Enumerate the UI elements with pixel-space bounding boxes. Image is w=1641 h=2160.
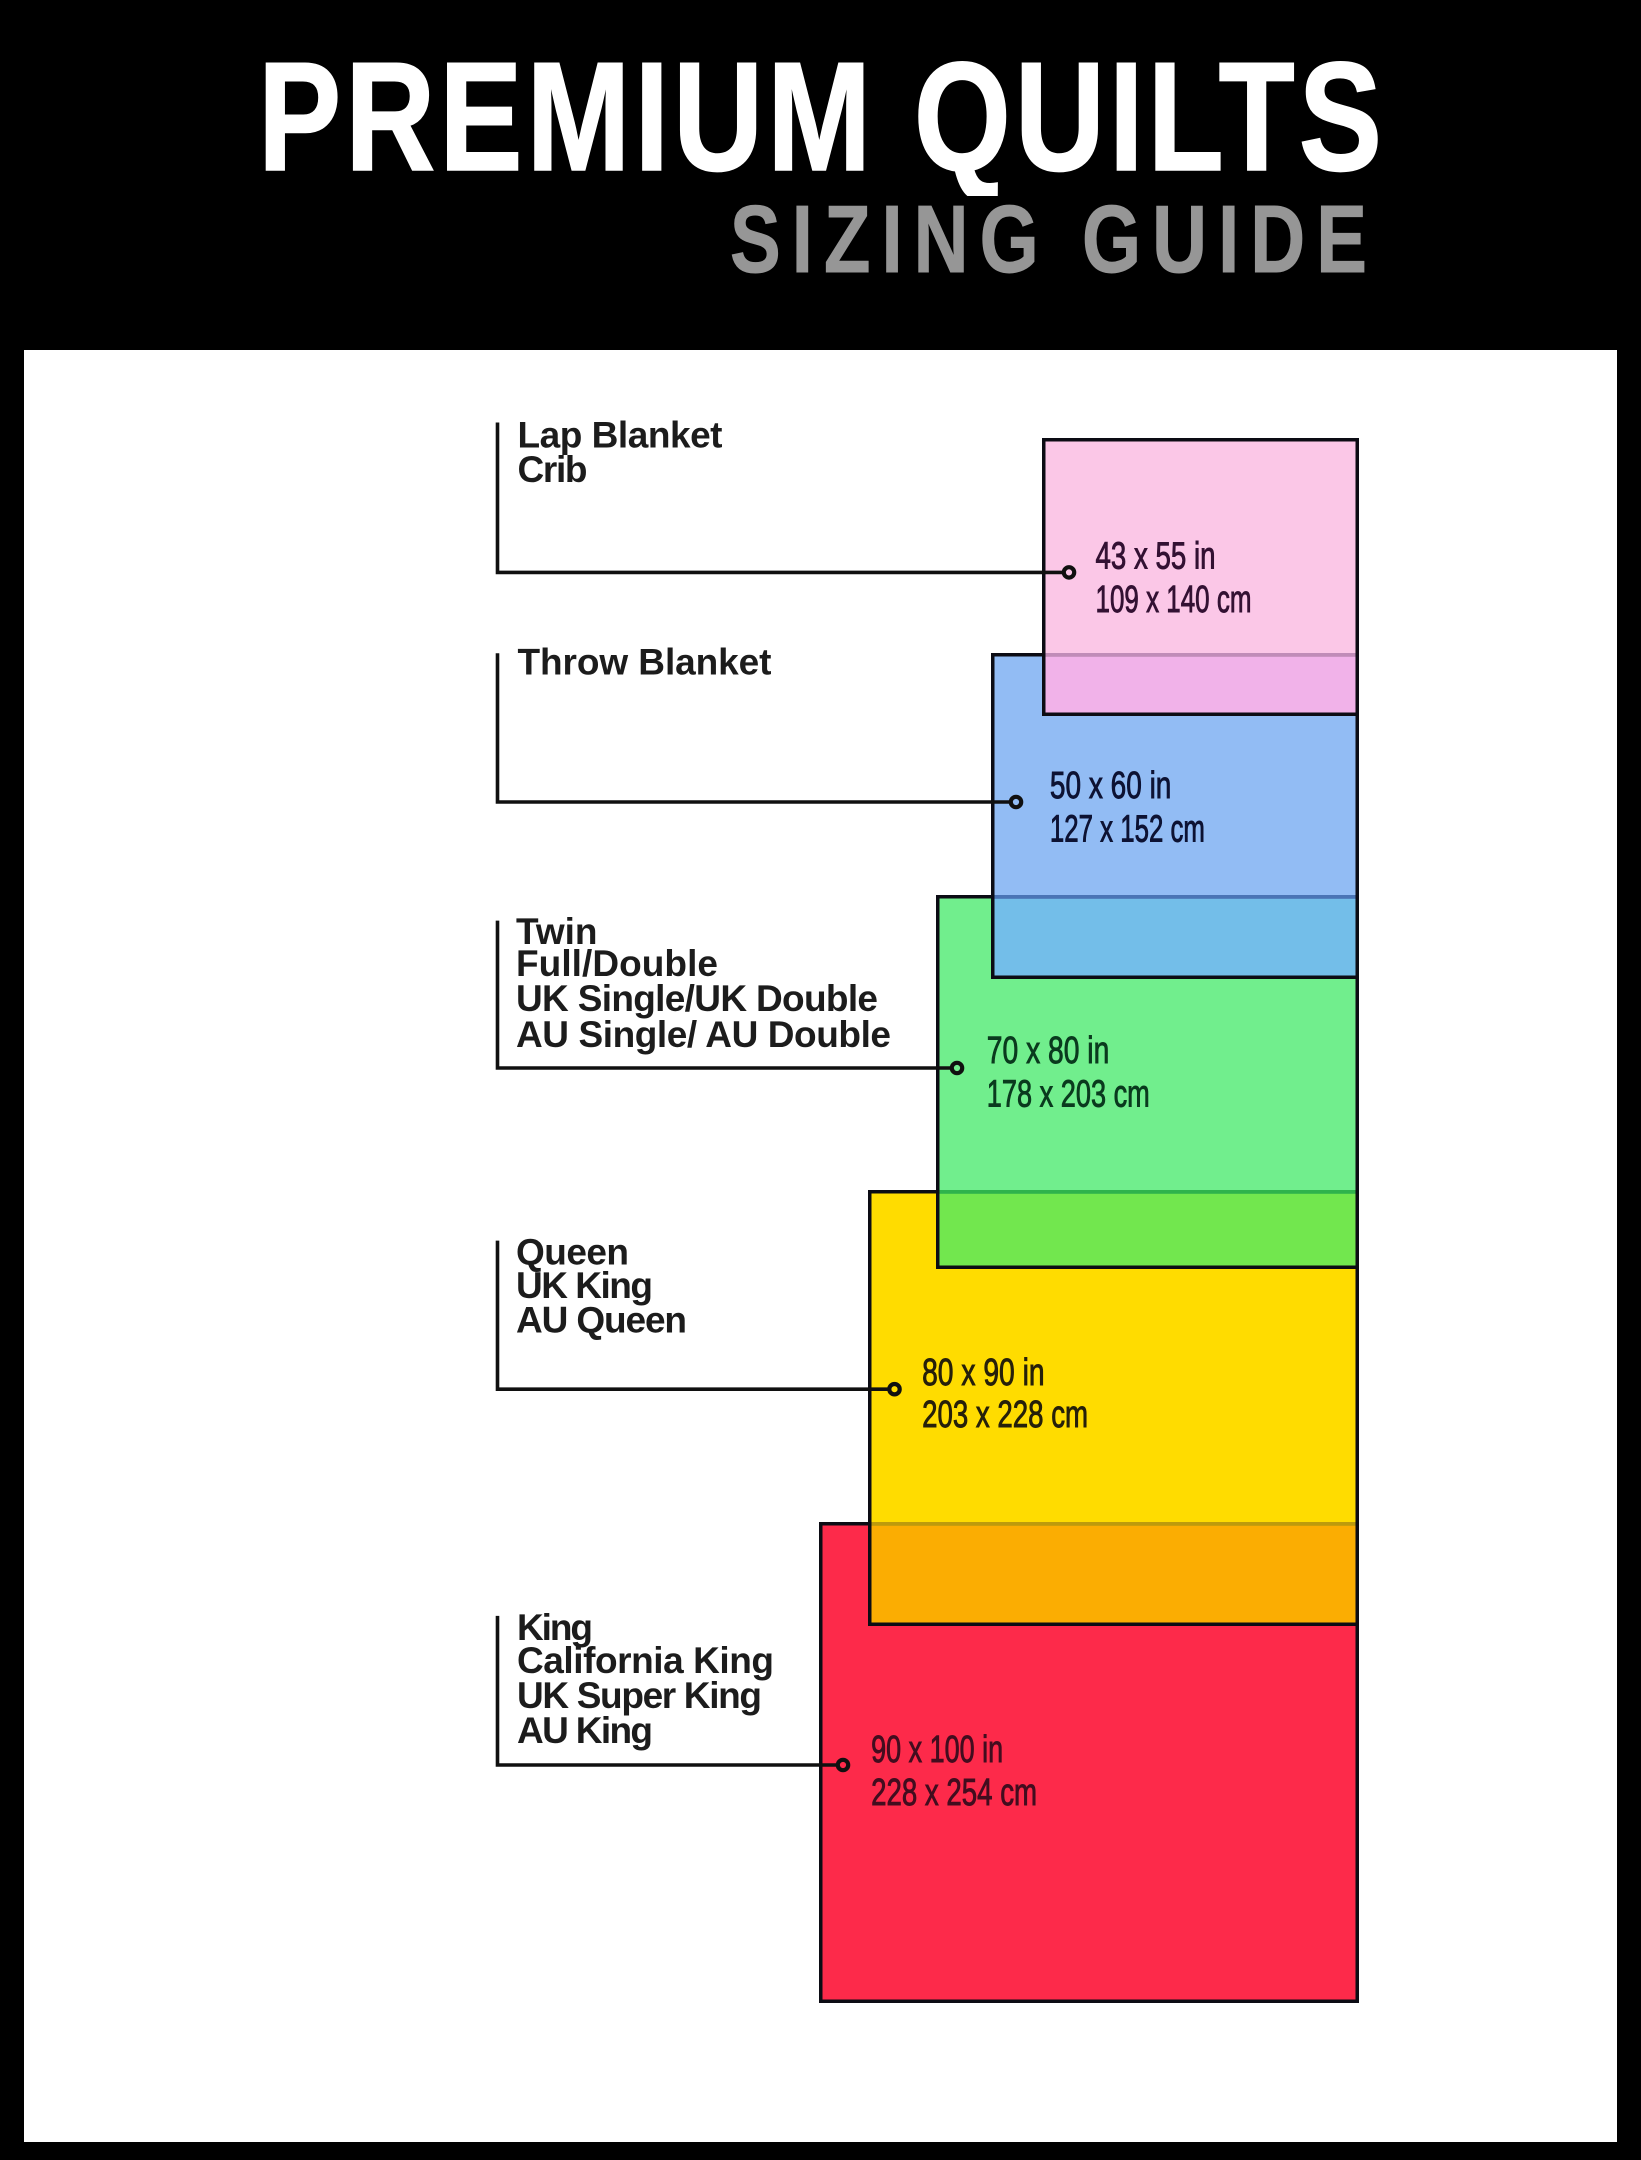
svg-text:AU Queen: AU Queen [516,1300,687,1341]
svg-text:80 x 90 in: 80 x 90 in [922,1352,1045,1394]
svg-text:PREMIUM QUILTS: PREMIUM QUILTS [258,30,1386,203]
svg-text:Throw Blanket: Throw Blanket [518,641,772,682]
svg-text:203 x 228 cm: 203 x 228 cm [922,1394,1088,1436]
svg-text:70 x 80 in: 70 x 80 in [987,1030,1110,1072]
svg-text:109 x 140 cm: 109 x 140 cm [1096,579,1252,621]
svg-text:Crib: Crib [518,449,588,490]
svg-text:AU Single/ AU Double: AU Single/ AU Double [516,1014,891,1055]
svg-text:SIZING GUIDE: SIZING GUIDE [730,186,1378,293]
svg-text:AU King: AU King [517,1710,653,1751]
svg-text:127 x 152 cm: 127 x 152 cm [1050,808,1205,850]
svg-text:50 x 60 in: 50 x 60 in [1050,765,1172,807]
svg-text:43 x 55 in: 43 x 55 in [1096,536,1216,578]
svg-text:90 x 100 in: 90 x 100 in [871,1729,1003,1771]
svg-text:178 x 203 cm: 178 x 203 cm [987,1074,1150,1116]
svg-text:228 x 254 cm: 228 x 254 cm [871,1772,1037,1814]
